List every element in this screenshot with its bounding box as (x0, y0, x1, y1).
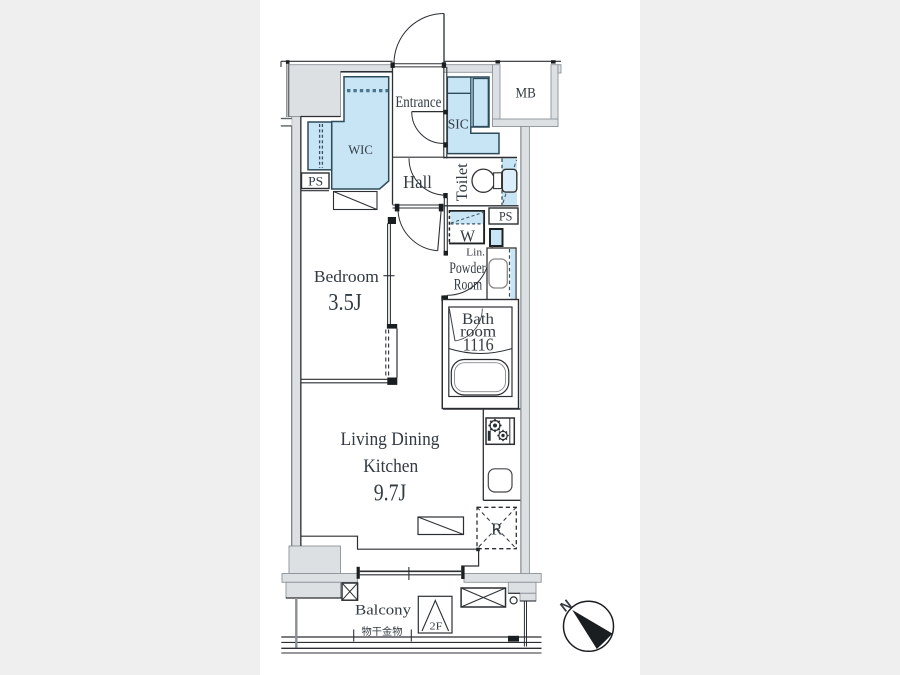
svg-text:Balcony: Balcony (355, 601, 411, 618)
svg-text:R: R (491, 520, 503, 539)
svg-text:Lin.: Lin. (466, 248, 485, 259)
svg-text:Toilet: Toilet (454, 163, 471, 202)
svg-text:Living Dining: Living Dining (341, 429, 440, 450)
svg-text:Hall: Hall (403, 172, 432, 192)
svg-text:Kitchen: Kitchen (363, 457, 418, 477)
svg-text:SIC: SIC (448, 118, 469, 133)
svg-text:Powder: Powder (449, 260, 486, 277)
svg-text:3.5J: 3.5J (328, 290, 362, 316)
svg-text:WIC: WIC (348, 143, 373, 157)
svg-text:Bedroom: Bedroom (314, 267, 379, 286)
svg-text:9.7J: 9.7J (374, 480, 407, 506)
svg-text:1116: 1116 (463, 334, 494, 354)
svg-text:Room: Room (454, 277, 483, 294)
svg-text:W: W (460, 227, 476, 246)
svg-text:Entrance: Entrance (395, 94, 441, 111)
svg-text:PS: PS (499, 210, 513, 224)
svg-text:MB: MB (516, 86, 536, 102)
svg-text:PS: PS (308, 173, 323, 188)
svg-text:2F: 2F (430, 621, 443, 633)
svg-text:物干金物: 物干金物 (362, 625, 403, 638)
